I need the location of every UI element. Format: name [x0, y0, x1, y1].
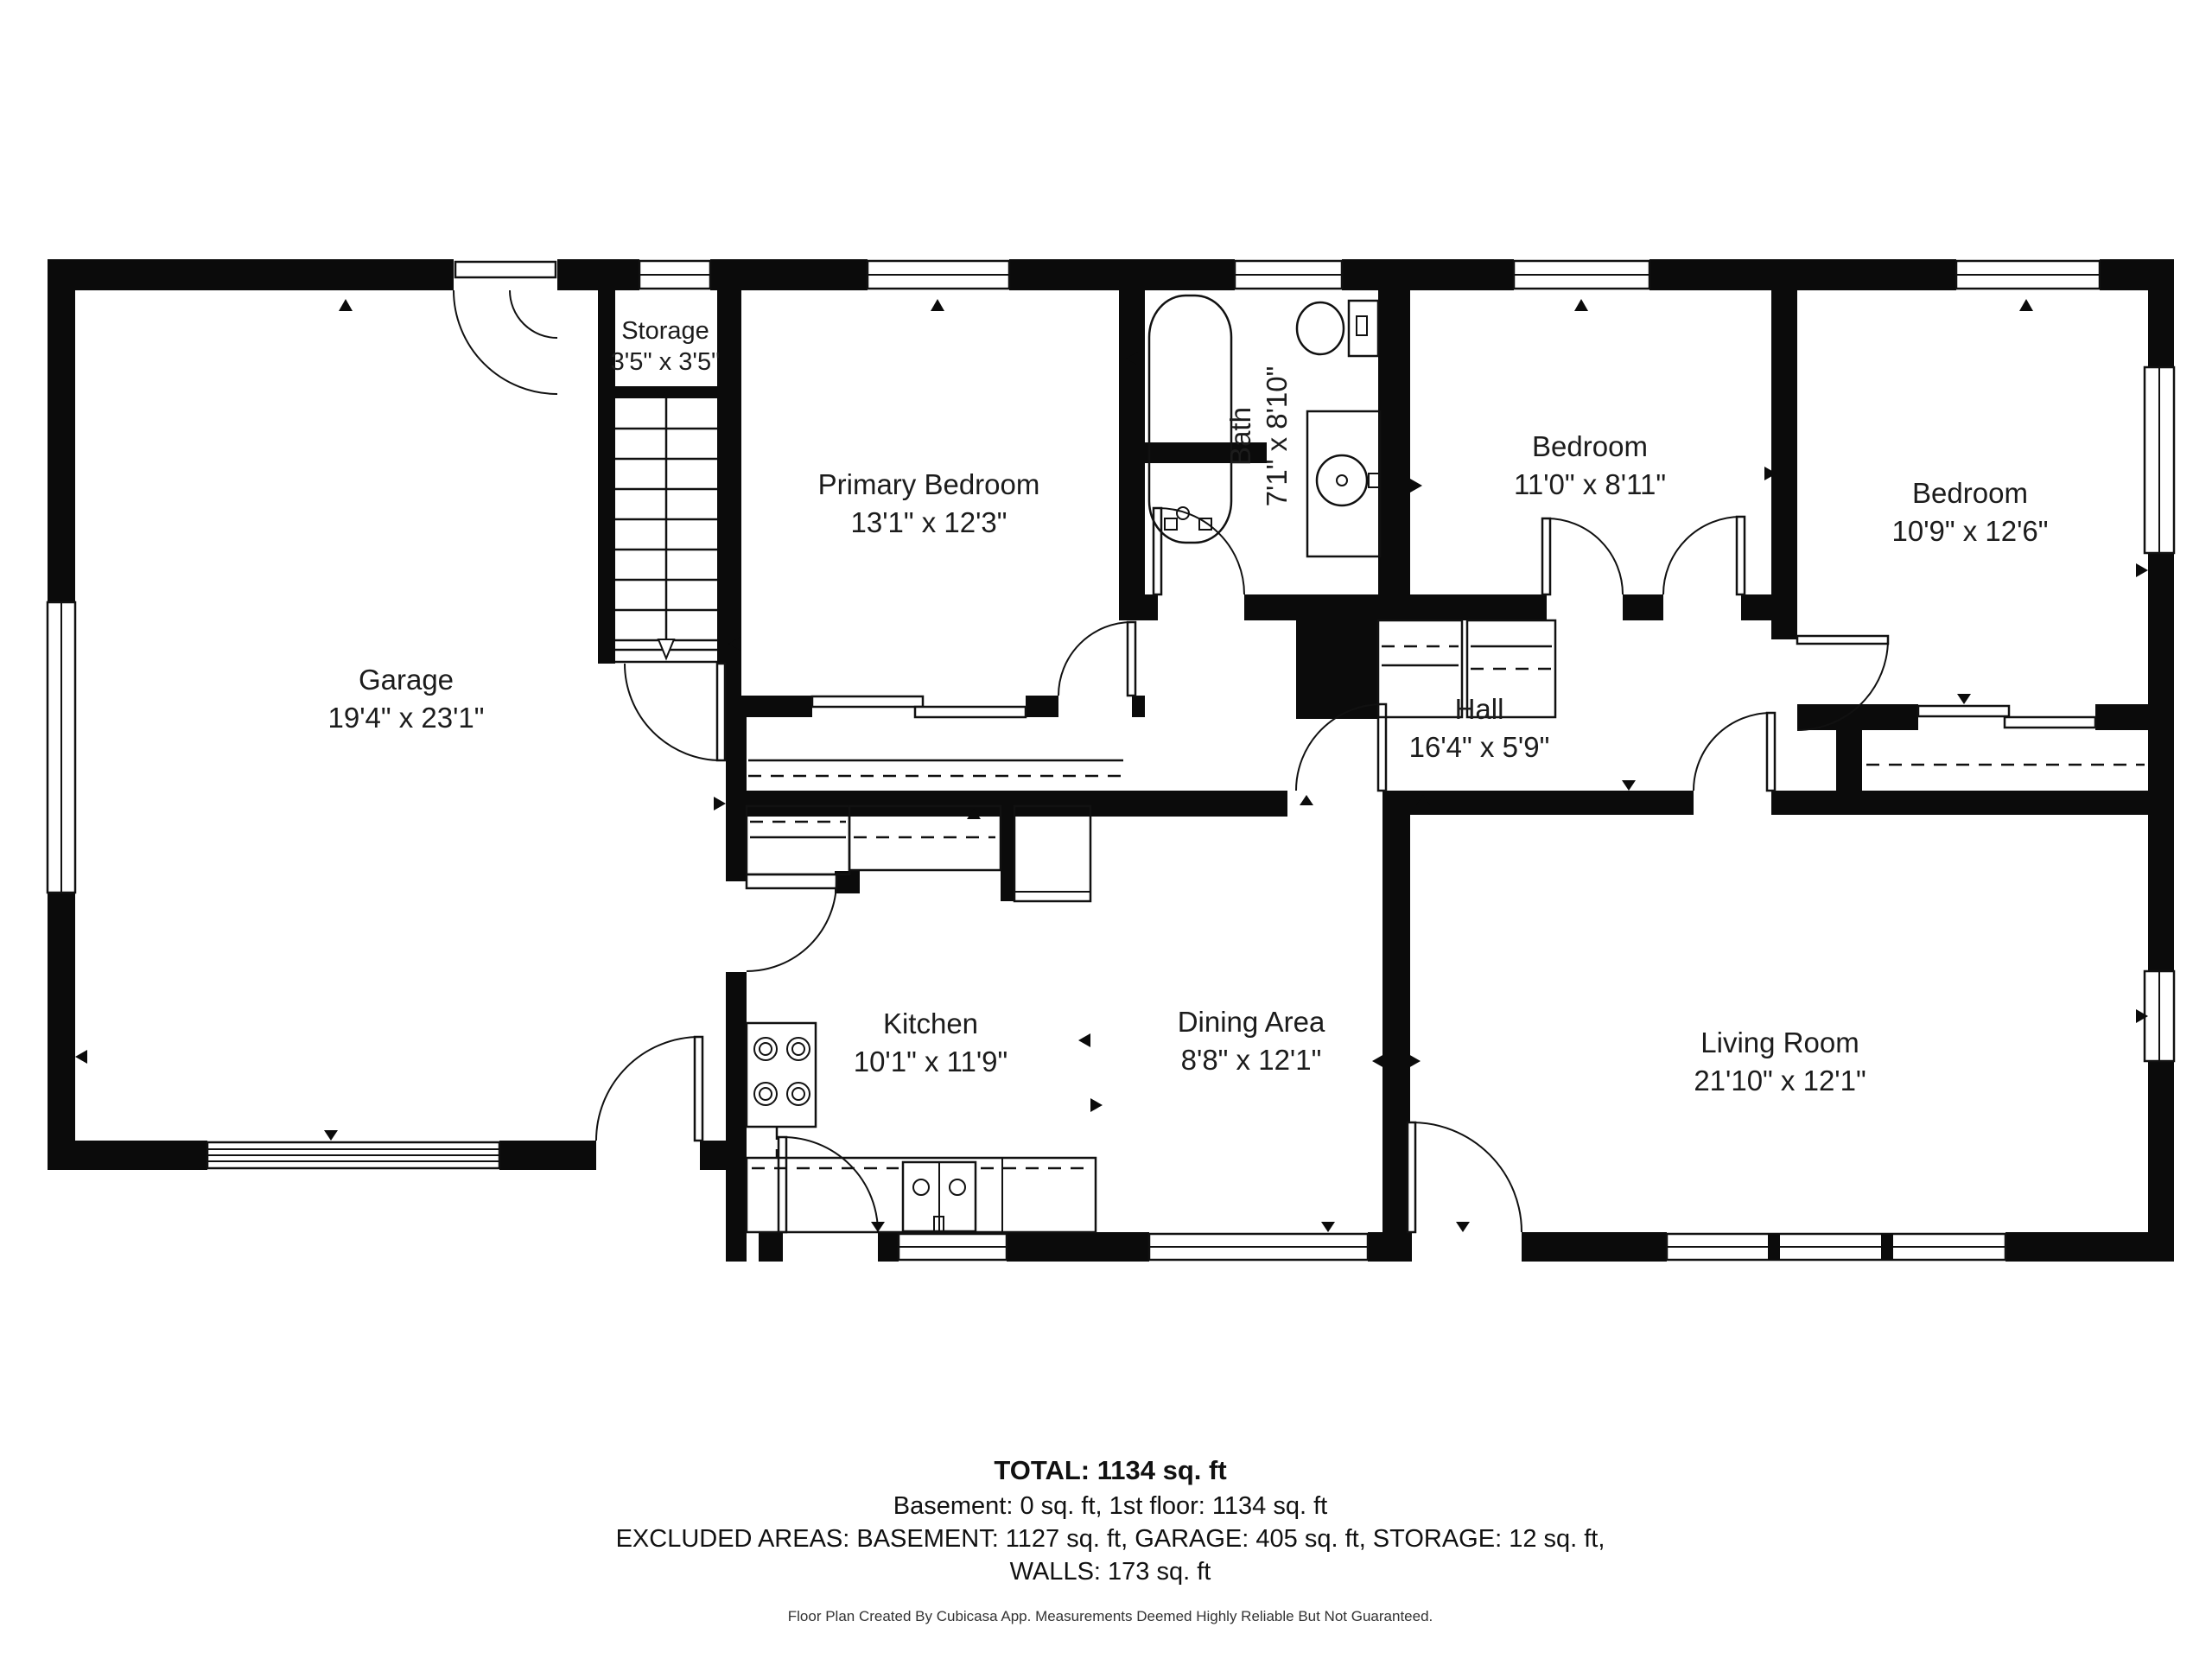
door-kitchen-garage	[747, 874, 836, 971]
window-garage-left	[48, 602, 75, 893]
label-primary-name: Primary Bedroom	[818, 468, 1040, 500]
label-storage-name: Storage	[621, 317, 709, 345]
label-bath-dims: 7'1" x 8'10"	[1261, 366, 1293, 507]
window-bedroom-right-top	[1956, 261, 2100, 289]
summary-excluded: EXCLUDED AREAS: BASEMENT: 1127 sq. ft, G…	[616, 1525, 1605, 1553]
window-living-triple	[1667, 1234, 2005, 1260]
kitchen-sink	[903, 1162, 976, 1232]
stove	[747, 1023, 816, 1127]
label-bath-name: Bath	[1224, 407, 1256, 466]
label-dining-dims: 8'8" x 12'1"	[1181, 1044, 1322, 1076]
label-hall-name: Hall	[1455, 693, 1504, 725]
sliding-door-primary-closet	[812, 696, 1026, 717]
label-living-dims: 21'10" x 12'1"	[1694, 1065, 1866, 1096]
floor-plan: Garage 19'4" x 23'1" Storage 3'5" x 3'5"…	[0, 0, 2212, 1659]
sink-vanity	[1307, 411, 1380, 556]
window-bedroom-right-side	[2145, 367, 2174, 553]
door-hall-living	[1694, 713, 1775, 791]
hall-closet-1	[1378, 620, 1462, 717]
door-bedroom-middle-2	[1663, 517, 1745, 594]
door-garage-bottom	[596, 1037, 702, 1141]
label-living-name: Living Room	[1700, 1027, 1859, 1058]
window-living-side	[2145, 971, 2174, 1061]
summary-walls: WALLS: 173 sq. ft	[1010, 1558, 1211, 1586]
door-bedroom-middle	[1542, 518, 1623, 594]
window-primary-bedroom	[868, 261, 1009, 289]
label-bedroom-middle-name: Bedroom	[1532, 430, 1648, 462]
summary-block: TOTAL: 1134 sq. ft Basement: 0 sq. ft, 1…	[616, 1455, 1605, 1624]
label-dining-name: Dining Area	[1178, 1006, 1325, 1038]
label-primary-dims: 13'1" x 12'3"	[851, 506, 1007, 538]
bathtub	[1149, 296, 1231, 543]
label-garage-name: Garage	[359, 664, 454, 696]
entry-door-garage-top	[454, 262, 557, 394]
label-bedroom-middle-dims: 11'0" x 8'11"	[1514, 468, 1666, 500]
label-garage-dims: 19'4" x 23'1"	[328, 702, 485, 734]
label-kitchen-dims: 10'1" x 11'9"	[854, 1046, 1008, 1077]
label-kitchen-name: Kitchen	[883, 1007, 978, 1039]
footer-disclaimer: Floor Plan Created By Cubicasa App. Meas…	[788, 1608, 1433, 1624]
label-hall-dims: 16'4" x 5'9"	[1409, 731, 1550, 763]
window-bath	[1235, 261, 1342, 289]
summary-total: TOTAL: 1134 sq. ft	[994, 1455, 1226, 1485]
summary-floors: Basement: 0 sq. ft, 1st floor: 1134 sq. …	[893, 1492, 1327, 1520]
staircase	[615, 398, 717, 658]
door-stairs	[615, 650, 725, 760]
door-primary-bedroom	[1058, 622, 1135, 696]
window-bedroom-middle	[1514, 261, 1649, 289]
door-kitchen-entry	[779, 1137, 878, 1232]
primary-closet	[748, 760, 1123, 776]
window-storage	[639, 261, 710, 289]
label-bedroom-right-dims: 10'9" x 12'6"	[1892, 515, 2049, 547]
sliding-door-bedroom-right-closet	[1918, 706, 2095, 728]
toilet	[1297, 301, 1378, 356]
door-living-bottom	[1408, 1122, 1522, 1232]
label-bedroom-right-name: Bedroom	[1912, 477, 2028, 509]
label-storage-dims: 3'5" x 3'5"	[611, 348, 721, 376]
garage-door	[207, 1142, 499, 1168]
window-kitchen	[899, 1234, 1007, 1260]
refrigerator	[1014, 806, 1090, 901]
window-dining	[1149, 1234, 1368, 1260]
